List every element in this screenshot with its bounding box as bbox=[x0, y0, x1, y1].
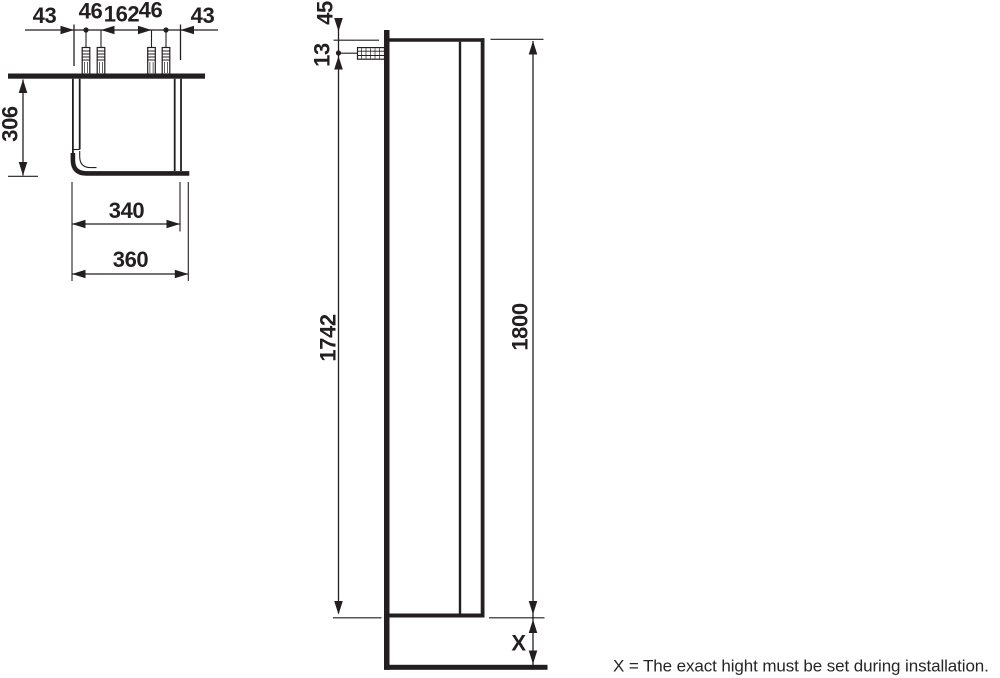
arrow-right-icon bbox=[61, 26, 75, 35]
dim-label-13: 13 bbox=[310, 43, 335, 67]
left-dimension-stack: 45 13 1742 bbox=[310, 1, 382, 618]
dim-label-43-left: 43 bbox=[33, 3, 57, 28]
wall-anchor-icon bbox=[82, 48, 90, 75]
wall-line bbox=[384, 30, 390, 670]
arrow-up-icon bbox=[334, 56, 343, 70]
height-dimension: 1800 bbox=[489, 39, 545, 666]
cabinet-plan bbox=[73, 79, 189, 174]
arrow-left-icon bbox=[72, 220, 86, 229]
dim-label-340: 340 bbox=[109, 198, 145, 223]
dim-label-43-right: 43 bbox=[191, 3, 215, 28]
arrow-right-icon bbox=[175, 270, 189, 279]
wall-section bbox=[8, 74, 205, 79]
arrow-left-icon bbox=[72, 270, 86, 279]
dim-label-46-left: 46 bbox=[79, 0, 103, 24]
wall-anchors bbox=[82, 48, 170, 75]
arrow-down-icon bbox=[334, 601, 343, 615]
arrow-left-icon bbox=[101, 26, 115, 35]
mounting-screw-icon bbox=[339, 48, 385, 60]
floor-line bbox=[384, 665, 548, 670]
arrow-down-icon bbox=[19, 162, 28, 176]
arrow-up-icon bbox=[529, 41, 538, 55]
dim-label-46-right: 46 bbox=[139, 0, 163, 23]
door-inner-corner bbox=[80, 151, 97, 168]
arrow-up-icon bbox=[19, 80, 28, 94]
outer-width-dimension: 360 bbox=[72, 182, 188, 281]
dim-label-1800: 1800 bbox=[508, 303, 533, 351]
installation-note: X = The exact hight must be set during i… bbox=[613, 657, 989, 676]
dim-label-360: 360 bbox=[113, 247, 149, 272]
arrow-left-icon bbox=[181, 26, 195, 35]
anchor-leader-lines bbox=[86, 30, 166, 48]
dimension-dot bbox=[336, 50, 341, 55]
arrow-down-icon bbox=[529, 651, 538, 665]
dim-label-45: 45 bbox=[313, 1, 338, 25]
wall-anchor-icon bbox=[148, 48, 156, 75]
dim-label-1742: 1742 bbox=[316, 314, 341, 362]
cabinet-door-front bbox=[73, 153, 189, 173]
arrow-down-icon bbox=[529, 601, 538, 615]
dim-label-306: 306 bbox=[0, 106, 23, 142]
drawing-canvas: 43 46 162 46 43 bbox=[0, 0, 1000, 678]
wall-anchor-icon bbox=[162, 48, 170, 75]
arrow-right-icon bbox=[138, 26, 152, 35]
technical-drawing: 43 46 162 46 43 bbox=[0, 0, 1000, 678]
dim-label-x: X bbox=[511, 631, 526, 656]
chain-dimension: 43 46 162 46 43 bbox=[25, 0, 218, 66]
side-view: 45 13 1742 1800 X bbox=[310, 1, 548, 670]
wall-anchor-icon bbox=[97, 48, 105, 75]
dim-label-162: 162 bbox=[104, 2, 140, 27]
arrow-right-icon bbox=[167, 220, 181, 229]
cabinet-side bbox=[388, 38, 485, 617]
arrow-up-icon bbox=[529, 620, 538, 634]
top-view: 43 46 162 46 43 bbox=[0, 0, 218, 281]
depth-dimension: 306 bbox=[0, 80, 38, 177]
